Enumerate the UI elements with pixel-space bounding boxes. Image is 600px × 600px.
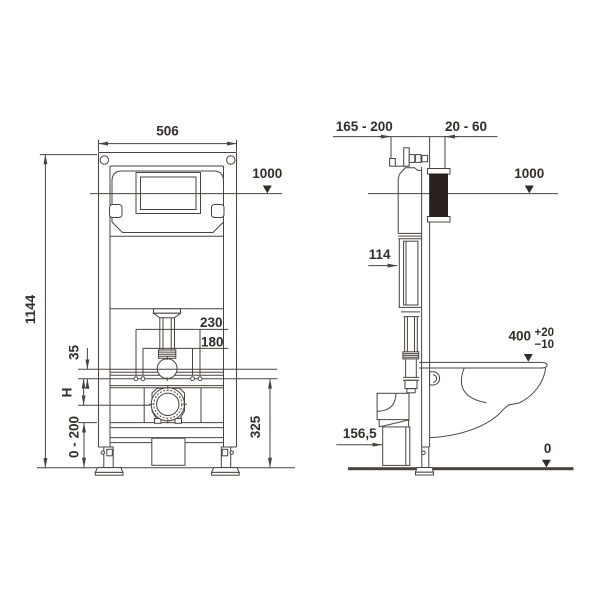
installation-frame-diagram: 506 1144 1000 230 180: [0, 0, 600, 600]
side-flush-plate: [428, 137, 451, 222]
pipe-to-rods-label: 35: [67, 345, 82, 361]
side-ground-line: [348, 467, 574, 470]
rod-height-label: 325: [248, 415, 263, 438]
floor-level-label: 0: [544, 441, 552, 456]
side-actuator-rod: [390, 148, 428, 166]
rod-hole: [191, 377, 195, 381]
bowl-tolerance-plus-label: +20: [535, 327, 555, 339]
side-view: 165 - 200 20 - 60 1000 114 400 +20 −10 1…: [333, 119, 574, 475]
rod-hole: [141, 377, 145, 381]
flush-pipe-outlet: [157, 359, 177, 379]
side-datum-label: 1000: [514, 166, 544, 181]
side-cistern: [398, 168, 421, 317]
side-flush-pipe: [403, 317, 419, 393]
flush-plate-block: [430, 174, 448, 217]
mounting-depth-label: 165 - 200: [336, 119, 393, 134]
frame-hole-left: [100, 156, 108, 164]
rod-hole: [198, 377, 202, 381]
wall-thickness-label: 20 - 60: [445, 119, 487, 134]
front-width-label: 506: [156, 124, 179, 139]
rod-spacing-inner-label: 180: [201, 335, 224, 350]
cistern-latch-left: [110, 205, 123, 218]
floor-level-marker: [542, 460, 551, 468]
front-datum-label: 1000: [252, 166, 282, 181]
flush-plate-opening: [136, 173, 201, 214]
rod-spacing-outer-label: 230: [200, 315, 223, 330]
cistern-latch-right: [212, 205, 225, 218]
rod-hole: [134, 377, 138, 381]
bowl-height-marker: [524, 354, 533, 362]
outlet-height-label: 156,5: [343, 426, 377, 441]
front-view: 506 1144 1000 230 180: [23, 124, 295, 476]
front-flush-pipe: [154, 309, 181, 359]
side-drain-elbow: [377, 393, 410, 465]
variable-height-label: H: [60, 388, 75, 398]
front-height-label: 1144: [23, 294, 38, 324]
front-datum-marker: [263, 186, 272, 194]
technical-drawing: 506 1144 1000 230 180: [0, 0, 600, 600]
bowl-fixing-boss: [430, 372, 440, 385]
side-toilet-bowl: [419, 362, 547, 437]
frame-hole-right: [227, 156, 235, 164]
front-drain: [149, 385, 187, 423]
front-cistern: [110, 171, 225, 236]
cistern-depth-label: 114: [369, 247, 391, 262]
leg-adjustment-label: 0 - 200: [67, 416, 82, 458]
side-datum-marker: [525, 186, 534, 194]
bowl-tolerance-minus-label: −10: [535, 339, 555, 351]
front-access-box: [152, 438, 185, 465]
bowl-height-label: 400: [509, 329, 532, 344]
